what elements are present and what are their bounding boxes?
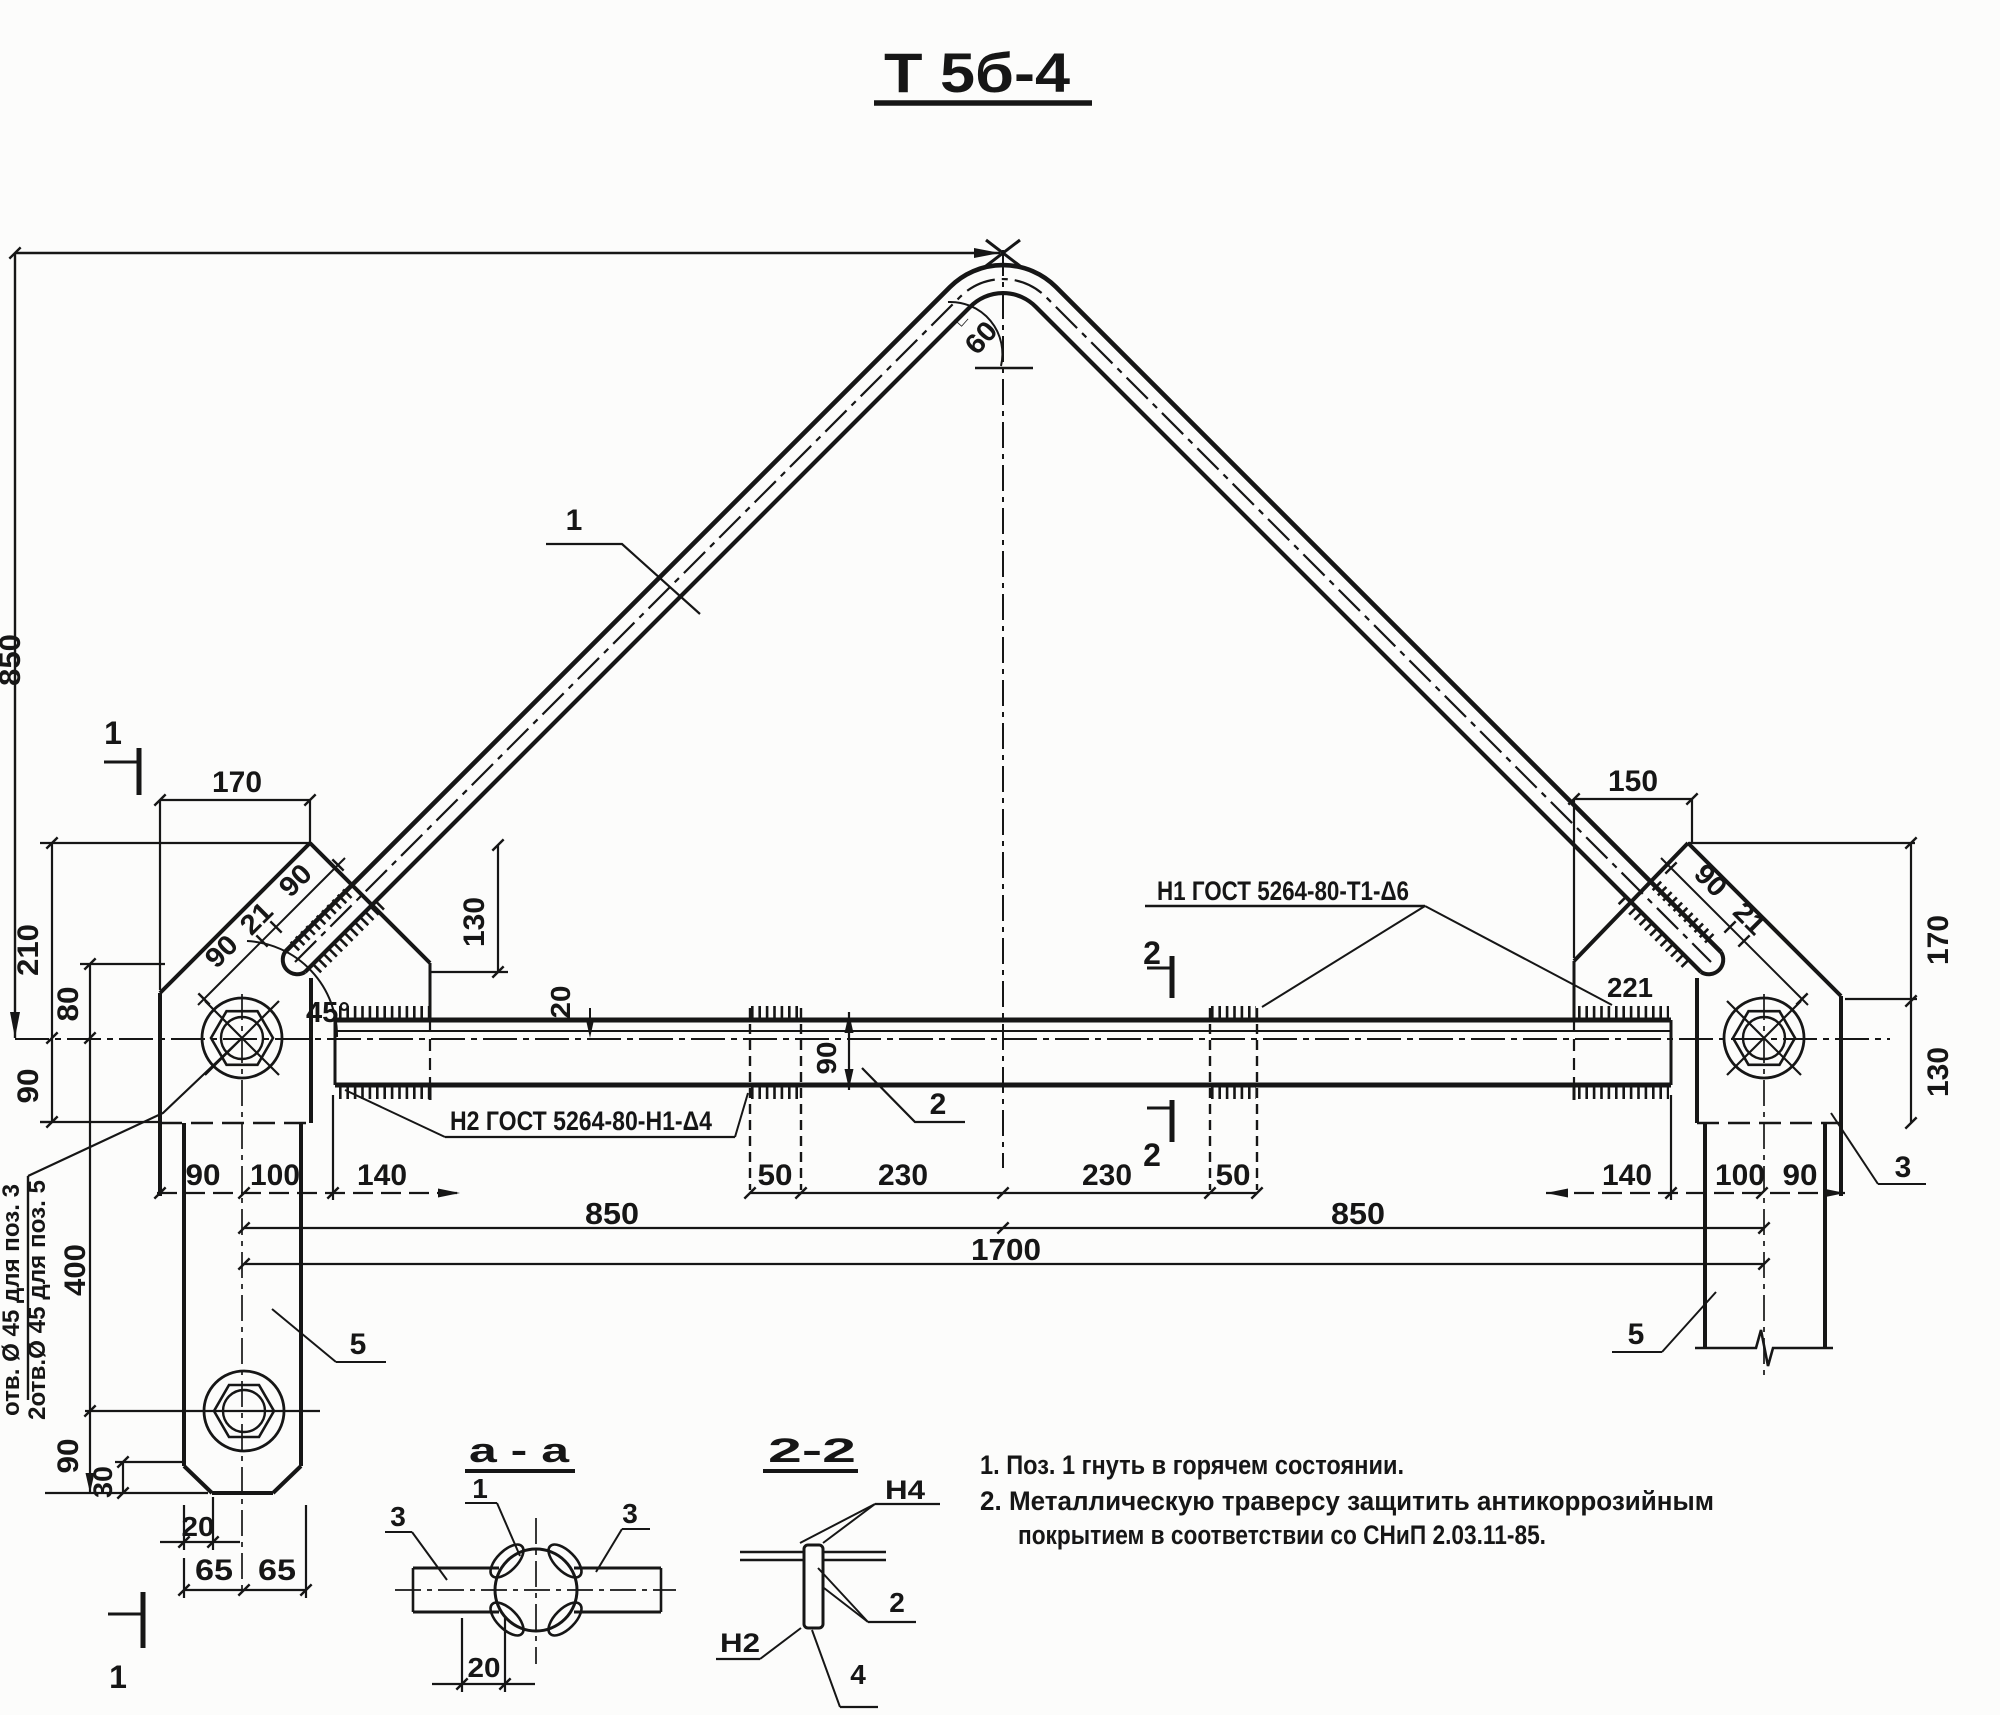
svg-text:3: 3 (390, 1501, 406, 1532)
svg-text:140: 140 (1602, 1159, 1652, 1192)
svg-text:Н1 ГОСТ 5264-80-Т1-Δ6: Н1 ГОСТ 5264-80-Т1-Δ6 (1157, 876, 1409, 906)
svg-text:850: 850 (1331, 1196, 1385, 1231)
svg-text:50: 50 (758, 1159, 793, 1192)
svg-text:100: 100 (250, 1159, 300, 1192)
svg-text:отв. Ø 45 для поз. 3: отв. Ø 45 для поз. 3 (0, 1184, 25, 1416)
svg-text:20: 20 (468, 1652, 501, 1683)
svg-text:170: 170 (212, 766, 262, 799)
svg-text:2. Металлическую траверсу за: 2. Металлическую траверсу защитить антик… (980, 1486, 1714, 1516)
svg-text:130: 130 (458, 897, 491, 947)
svg-text:2: 2 (930, 1088, 947, 1121)
svg-text:30: 30 (88, 1466, 118, 1498)
svg-text:2: 2 (889, 1587, 905, 1618)
svg-text:3: 3 (622, 1498, 638, 1529)
svg-text:400: 400 (59, 1244, 92, 1296)
svg-text:1: 1 (109, 1659, 127, 1695)
svg-text:170: 170 (1922, 915, 1955, 965)
svg-text:65: 65 (195, 1554, 233, 1587)
svg-text:230: 230 (1082, 1159, 1132, 1192)
svg-text:50: 50 (1216, 1159, 1251, 1192)
svg-text:130: 130 (1922, 1047, 1955, 1097)
svg-text:100: 100 (1715, 1159, 1765, 1192)
svg-text:45°: 45° (306, 997, 350, 1029)
svg-text:1700: 1700 (971, 1232, 1041, 1267)
svg-text:2: 2 (1143, 935, 1161, 971)
svg-text:2-2: 2-2 (768, 1432, 856, 1470)
svg-text:Н2: Н2 (720, 1628, 760, 1658)
svg-text:90: 90 (52, 1439, 85, 1474)
svg-text:3: 3 (1895, 1151, 1912, 1184)
svg-text:2: 2 (1143, 1137, 1161, 1173)
svg-text:1: 1 (472, 1473, 488, 1504)
svg-text:1: 1 (566, 504, 583, 537)
svg-text:80: 80 (52, 987, 85, 1022)
svg-text:65: 65 (258, 1554, 296, 1587)
svg-text:150: 150 (1608, 765, 1658, 798)
svg-text:90: 90 (811, 1042, 842, 1075)
svg-text:90: 90 (186, 1159, 221, 1192)
svg-text:а - а: а - а (469, 1432, 571, 1470)
svg-text:5: 5 (350, 1328, 367, 1361)
svg-text:850: 850 (0, 634, 27, 686)
svg-text:покрытием в соответствии со: покрытием в соответствии со СНиП 2.03.11… (1018, 1520, 1546, 1550)
svg-text:1. Поз. 1 гнуть в горячем сос: 1. Поз. 1 гнуть в горячем состоянии. (980, 1450, 1404, 1480)
svg-text:1: 1 (104, 715, 122, 751)
svg-text:90: 90 (12, 1069, 45, 1104)
svg-text:Т 5б-4: Т 5б-4 (884, 41, 1070, 104)
svg-text:Н4: Н4 (885, 1475, 925, 1505)
svg-text:20: 20 (545, 986, 576, 1019)
svg-text:210: 210 (12, 924, 45, 976)
svg-text:230: 230 (878, 1159, 928, 1192)
svg-text:140: 140 (357, 1159, 407, 1192)
svg-text:850: 850 (585, 1196, 639, 1231)
svg-text:Н2 ГОСТ 5264-80-Н1-Δ4: Н2 ГОСТ 5264-80-Н1-Δ4 (450, 1106, 712, 1136)
svg-text:90: 90 (1783, 1159, 1818, 1192)
svg-text:20: 20 (182, 1511, 215, 1542)
svg-text:5: 5 (1628, 1318, 1645, 1351)
svg-text:4: 4 (850, 1659, 866, 1690)
svg-text:221: 221 (1607, 972, 1653, 1003)
